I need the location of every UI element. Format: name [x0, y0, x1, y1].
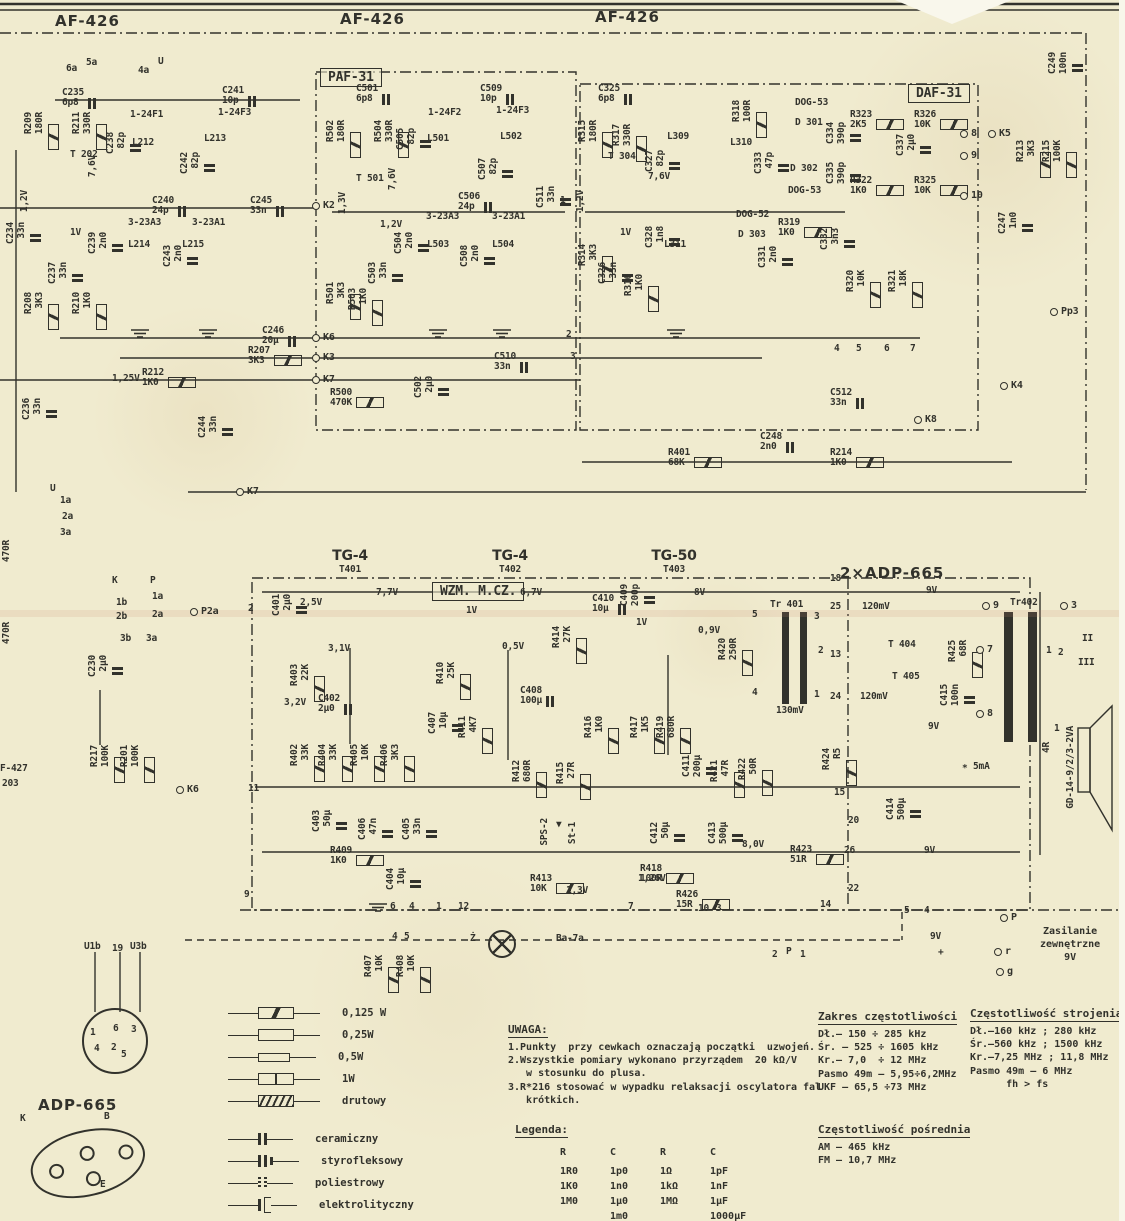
- text-label: ∗ 5mA: [962, 762, 990, 772]
- text-label: 4a: [138, 66, 149, 76]
- text-label: U: [158, 57, 164, 67]
- c509: C50910p: [480, 84, 514, 105]
- text-label: 6: [884, 344, 890, 354]
- pin-label: K7: [236, 486, 259, 497]
- text-label: Tr402: [1010, 598, 1038, 608]
- text-label: 120mV: [862, 602, 890, 612]
- text-label: 3: [131, 1025, 137, 1035]
- tuning-frequency-lines: Dł.–160 kHz ; 280 kHzŚr.–560 kHz ; 1500 …: [970, 1025, 1122, 1091]
- text-label: 1: [800, 950, 806, 960]
- package-hole: [47, 1162, 65, 1180]
- din-connector: [82, 1008, 148, 1074]
- r412: R412680R: [512, 760, 547, 798]
- adp-665-package: [24, 1117, 153, 1209]
- c247: C2471n0: [998, 212, 1033, 234]
- if-frequency-lines: AM – 465 kHzFM – 10,7 MHz: [818, 1141, 970, 1167]
- text-label: 1a: [152, 592, 163, 602]
- r422: R42250R: [738, 758, 773, 796]
- c241: C24110p: [222, 86, 256, 107]
- text-label: 2: [111, 1043, 117, 1053]
- text-label: 3: [814, 612, 820, 622]
- r314: R3143K3: [578, 244, 613, 282]
- r410: R41025K: [436, 662, 471, 700]
- text-label: 7,6V: [88, 155, 98, 177]
- text-label: Ba-7a: [556, 934, 584, 944]
- text-label: 14: [820, 900, 831, 910]
- c406: C40647n: [358, 818, 393, 840]
- text-label: 3-23A1: [192, 218, 225, 228]
- c506: C50624p: [458, 192, 492, 213]
- r415: R41527R: [556, 762, 591, 800]
- text-label: 4: [392, 932, 398, 942]
- text-label: 4: [94, 1044, 100, 1054]
- legenda-header: C: [710, 1147, 770, 1158]
- text-label: 15: [834, 788, 845, 798]
- text-label: D 301: [795, 118, 823, 128]
- text-label: P: [786, 947, 792, 957]
- section-header: AF-426: [55, 12, 120, 30]
- l213: L213: [202, 134, 226, 148]
- pin-label: 10: [960, 190, 983, 201]
- text-label: II: [1082, 634, 1093, 644]
- capacitor-symbol: [258, 1197, 271, 1213]
- text-label: Ż: [470, 934, 476, 944]
- legenda-cell: 1pF: [710, 1166, 770, 1177]
- if-frequency-title: Częstotliwość pośrednia: [818, 1123, 970, 1138]
- capacitor-symbol: [258, 1133, 267, 1145]
- r214: R2141K0: [830, 448, 884, 468]
- text-label: 2a: [62, 512, 73, 522]
- legend-row-resistor: 0,25W: [228, 1024, 386, 1046]
- text-label: U1b: [84, 942, 101, 952]
- text-label: 3,2V: [284, 698, 306, 708]
- capacitor-legend: ceramicznystyrofleksowypoliestrowyelektr…: [228, 1128, 414, 1216]
- c248: C2482n0: [760, 432, 794, 453]
- text-label: 470R: [2, 622, 12, 644]
- legenda-cell: 1M0: [560, 1196, 610, 1207]
- text-label: 1V: [636, 618, 647, 628]
- legenda-table: RCRC1R01p01Ω1pF1K01n01kΩ1nF1M01μ01MΩ1μF1…: [560, 1147, 770, 1221]
- c412: C41250μ: [650, 822, 685, 844]
- frequency-range-lines: Dł.– 150 ÷ 285 kHzŚr. – 525 ÷ 1605 kHzKr…: [818, 1028, 957, 1094]
- text-label: T 405: [892, 672, 920, 682]
- c413: C413500μ: [708, 822, 743, 844]
- text-label: 3: [716, 904, 722, 914]
- c403: C40350μ: [312, 810, 347, 832]
- c337: C3372μ0: [896, 134, 931, 156]
- section-header: AF-426: [595, 8, 660, 26]
- c240: C24024p: [152, 196, 186, 217]
- pin-label: K2: [312, 200, 335, 211]
- text-label: 10: [698, 904, 709, 914]
- text-label: 3a: [146, 634, 157, 644]
- text-label: 2: [818, 646, 824, 656]
- text-label: 3,1V: [328, 644, 350, 654]
- r424: R424R5: [822, 748, 857, 786]
- c239: C2392n0: [88, 232, 123, 254]
- text-label: 20: [848, 816, 859, 826]
- pin-label: 7: [976, 644, 993, 655]
- pin-label: Pp3: [1050, 306, 1078, 317]
- r500: R500470K: [330, 388, 384, 408]
- text-label: 5: [404, 932, 410, 942]
- pin-label: r: [994, 946, 1011, 957]
- pin-label: K5: [988, 128, 1011, 139]
- legenda-cell: 1nF: [710, 1181, 770, 1192]
- text-label: T 501: [356, 174, 384, 184]
- c331: C3312n0: [758, 246, 793, 268]
- text-label: 1: [1054, 724, 1060, 734]
- legenda-cell: 1K0: [560, 1181, 610, 1192]
- r418: R418100R: [640, 864, 694, 884]
- c243: C2432n0: [163, 245, 198, 267]
- text-label: E: [100, 1180, 106, 1190]
- text-label: St-1: [568, 822, 578, 844]
- text-label: 12: [458, 902, 469, 912]
- text-label: 24: [830, 692, 841, 702]
- text-label: 2: [248, 604, 254, 614]
- r318: R318100R: [732, 100, 767, 138]
- c503: C50333n: [368, 262, 403, 284]
- r316: R3161K0: [624, 274, 659, 312]
- text-label: 1: [1046, 646, 1052, 656]
- text-label: 5: [121, 1050, 127, 1060]
- text-label: 203: [2, 779, 19, 789]
- r503: R5031K0: [348, 288, 383, 326]
- text-label: 7,6V: [388, 168, 398, 190]
- text-label: 5: [856, 344, 862, 354]
- text-label: 7: [628, 902, 634, 912]
- notes-lines: 1.Punkty przy cewkach oznaczają początki…: [508, 1041, 821, 1107]
- r408: R40810K: [396, 955, 431, 993]
- text-label: 120mV: [860, 692, 888, 702]
- text-label: F-427: [0, 764, 28, 774]
- section-header: 2×ADP-665: [840, 564, 944, 582]
- legenda-cell: [560, 1211, 610, 1221]
- resistor-symbol: [258, 1007, 294, 1019]
- c327: C32782p: [645, 150, 680, 172]
- text-label: K: [20, 1114, 26, 1124]
- r407: R40710K: [364, 955, 399, 993]
- r416: R4161K0: [584, 716, 619, 754]
- l309: L309: [665, 132, 689, 146]
- resistor-legend: 0,125 W0,25W0,5W1Wdrutowy: [228, 1002, 386, 1112]
- r201: R201100K: [120, 745, 155, 783]
- c237: C23733n: [48, 262, 83, 284]
- package-hole: [117, 1143, 135, 1161]
- c507: C50782p: [478, 158, 513, 180]
- legend-row-capacitor: elektrolityczny: [228, 1194, 414, 1216]
- text-label: 6,7V: [520, 588, 542, 598]
- r401: R40168K: [668, 448, 722, 468]
- pin-label: K8: [914, 414, 937, 425]
- text-label: 470R: [2, 540, 12, 562]
- c405: C40533n: [402, 818, 437, 840]
- legend-row-resistor: 1W: [228, 1068, 386, 1090]
- text-label: K: [112, 576, 118, 586]
- text-label: 2: [1058, 648, 1064, 658]
- pin-label: 8: [960, 128, 977, 139]
- c404: C40410μ: [386, 868, 421, 890]
- pin-label: P: [1000, 912, 1017, 923]
- r423: R42351R: [790, 845, 844, 865]
- text-label: 7,6V: [648, 172, 670, 182]
- tuning-frequency-block: Częstotliwość strojenia Dł.–160 kHz ; 28…: [970, 1002, 1122, 1091]
- text-label: 0,5V: [502, 642, 524, 652]
- text-label: 1a: [60, 496, 71, 506]
- text-label: 4: [924, 906, 930, 916]
- text-label: 5: [752, 610, 758, 620]
- text-label: 3a: [60, 528, 71, 538]
- text-label: 1: [90, 1028, 96, 1038]
- text-label: 1b: [116, 598, 127, 608]
- pin-label: K6: [176, 784, 199, 795]
- text-label: 9V: [924, 846, 935, 856]
- text-label: T 404: [888, 640, 916, 650]
- c242: C24282p: [180, 152, 215, 174]
- legenda-cell: 1n0: [610, 1181, 660, 1192]
- text-label: 13: [830, 650, 841, 660]
- t402: TG-4T402: [478, 548, 542, 578]
- text-label: 3-23A3: [426, 212, 459, 222]
- legenda-header: C: [610, 1147, 660, 1158]
- text-label: 2,5V: [300, 598, 322, 608]
- text-label: 2: [566, 330, 572, 340]
- text-label: DOG-52: [736, 210, 769, 220]
- r502: R502180R: [326, 120, 361, 158]
- text-label: 9: [244, 890, 250, 900]
- text-label: D 303: [738, 230, 766, 240]
- text-label: 5: [904, 906, 910, 916]
- text-label: 1,2V: [380, 220, 402, 230]
- tuning-frequency-title: Częstotliwość strojenia: [970, 1007, 1122, 1022]
- text-label: DOG-53: [795, 98, 828, 108]
- legend-row-capacitor: styrofleksowy: [228, 1150, 414, 1172]
- text-label: B: [104, 1112, 110, 1122]
- c409: C409200p: [620, 584, 655, 606]
- text-label: 5a: [86, 58, 97, 68]
- l310: L310: [728, 138, 752, 152]
- text-label: 9V: [930, 932, 941, 942]
- pin-label: 9: [960, 150, 977, 161]
- resistor-symbol: [258, 1029, 294, 1041]
- text-label: 1V: [70, 228, 81, 238]
- legenda-header: R: [560, 1147, 610, 1158]
- c246: C24620μ: [262, 326, 296, 347]
- r419: R419680R: [656, 716, 691, 754]
- pin-label: 8: [976, 708, 993, 719]
- r420: R420250R: [718, 638, 753, 676]
- text-label: 1-24F1: [130, 110, 163, 120]
- c332: C3323n3: [820, 228, 855, 250]
- c234: C23433n: [6, 222, 41, 244]
- text-label: SPS-2: [540, 818, 550, 846]
- r323: R3232K5: [850, 110, 904, 130]
- text-label: P: [150, 576, 156, 586]
- r212: R2121K0: [142, 368, 196, 388]
- text-label: 2b: [116, 612, 127, 622]
- text-label: 1: [436, 902, 442, 912]
- c512: C51233n: [830, 388, 864, 409]
- text-label: D 302: [790, 164, 818, 174]
- r209: R209180R: [24, 112, 59, 150]
- legend-row-resistor: drutowy: [228, 1090, 386, 1112]
- legenda-cell: 1000μF: [710, 1211, 770, 1221]
- l501: L501: [425, 134, 449, 148]
- legend-row-capacitor: ceramiczny: [228, 1128, 414, 1150]
- text-label: 8V: [694, 588, 705, 598]
- text-label: 8,0V: [742, 840, 764, 850]
- legenda-block: Legenda: RCRC1R01p01Ω1pF1K01n01kΩ1nF1M01…: [515, 1118, 770, 1221]
- c415: C415100n: [940, 684, 975, 706]
- text-label: 1,3V: [338, 192, 348, 214]
- text-label: DOG-53: [788, 186, 821, 196]
- text-label: 1,25V: [112, 374, 140, 384]
- capacitor-symbol: [258, 1155, 273, 1167]
- text-label: 3-23A1: [492, 212, 525, 222]
- resistor-symbol: [258, 1073, 294, 1085]
- c501: C5016p8: [356, 84, 390, 105]
- legenda-cell: 1Ω: [660, 1166, 710, 1177]
- legend-row-resistor: 0,125 W: [228, 1002, 386, 1024]
- text-label: 130mV: [776, 706, 804, 716]
- r210: R2101K0: [72, 292, 107, 330]
- legenda-cell: 1μ0: [610, 1196, 660, 1207]
- legenda-cell: 1μF: [710, 1196, 770, 1207]
- t403: TG-50T403: [642, 548, 706, 578]
- legenda-cell: 1MΩ: [660, 1196, 710, 1207]
- c245: C24533n: [250, 196, 284, 217]
- r411: R4114K7: [458, 716, 493, 754]
- legenda-cell: 1R0: [560, 1166, 610, 1177]
- legenda-title: Legenda:: [515, 1123, 568, 1138]
- pin-label: K3: [312, 352, 335, 363]
- text-label: 1,2V: [576, 190, 586, 212]
- text-label: 4: [752, 688, 758, 698]
- text-label: 3b: [120, 634, 131, 644]
- paper-edge: [1119, 0, 1125, 1221]
- legend-row-resistor: 0,5W: [228, 1046, 386, 1068]
- legend-row-capacitor: poliestrowy: [228, 1172, 414, 1194]
- text-label: 1-24F3: [218, 108, 251, 118]
- c508: C5082n0: [460, 245, 495, 267]
- text-label: +: [938, 948, 944, 958]
- c249: C249100n: [1048, 52, 1083, 74]
- t401: TG-4T401: [318, 548, 382, 578]
- text-label: 7,7V: [376, 588, 398, 598]
- c402: C4022μ0: [318, 694, 352, 715]
- c236: C23633n: [22, 398, 57, 420]
- r322: R3221K0: [850, 176, 904, 196]
- resistor-symbol: [258, 1095, 294, 1107]
- text-label: 3-23A3: [128, 218, 161, 228]
- r211: R211330R: [72, 112, 107, 150]
- text-label: 22: [848, 884, 859, 894]
- c333: C33347p: [754, 152, 789, 174]
- text-label: 1: [560, 196, 566, 206]
- r207: R2073K3: [248, 346, 302, 366]
- pin-label: P2a: [190, 606, 218, 617]
- l502: L502: [498, 132, 522, 146]
- c504: C5042n0: [394, 232, 429, 254]
- c230: C2302μ0: [88, 655, 123, 677]
- block-label: DAF-31: [908, 84, 970, 103]
- text-label: 1-24F2: [428, 108, 461, 118]
- text-label: T 304: [608, 152, 636, 162]
- notes-block: UWAGA: 1.Punkty przy cewkach oznaczają p…: [508, 1018, 821, 1107]
- r406: R4063K3: [380, 744, 415, 782]
- r215: R215100K: [1042, 140, 1077, 178]
- if-frequency-block: Częstotliwość pośrednia AM – 465 kHzFM –…: [818, 1118, 970, 1167]
- text-label: 9V: [928, 722, 939, 732]
- text-label: III: [1078, 658, 1095, 668]
- r320: R32010K: [846, 270, 881, 308]
- text-label: ▼: [556, 820, 562, 830]
- legenda-cell: [660, 1211, 710, 1221]
- legenda-cell: 1kΩ: [660, 1181, 710, 1192]
- l311: L311: [662, 240, 686, 254]
- text-label: 18: [830, 574, 841, 584]
- c502: C5022μ0: [414, 376, 449, 398]
- r414: R41427K: [552, 626, 587, 664]
- r409: R4091K0: [330, 846, 384, 866]
- block-label: WZM. M.CZ.: [432, 582, 524, 601]
- text-label: 1V: [620, 228, 631, 238]
- text-label: 1: [814, 690, 820, 700]
- r404: R40433K: [318, 744, 353, 782]
- c408: C408100μ: [520, 686, 554, 707]
- package-hole: [78, 1144, 96, 1162]
- text-label: 19: [112, 944, 123, 954]
- text-label: 4: [409, 902, 415, 912]
- legenda-cell: 1p0: [610, 1166, 660, 1177]
- frequency-range-title: Zakres częstotliwości: [818, 1010, 957, 1025]
- text-label: 1-24F3: [496, 106, 529, 116]
- lamp-icon: [488, 930, 516, 958]
- pin-label: g: [996, 966, 1013, 977]
- text-label: 3: [570, 352, 576, 362]
- notes-title: UWAGA:: [508, 1023, 548, 1038]
- pin-label: 3: [1060, 600, 1077, 611]
- text-label: 1,2V: [20, 190, 30, 212]
- capacitor-symbol: [258, 1177, 267, 1189]
- text-label: 2: [772, 950, 778, 960]
- pin-label: K7: [312, 374, 335, 385]
- pin-label: 9: [982, 600, 999, 611]
- c325: C3256p8: [598, 84, 632, 105]
- l212: L212: [130, 138, 154, 152]
- legenda-cell: 1m0: [610, 1211, 660, 1221]
- text-label: 4: [834, 344, 840, 354]
- text-label: 6: [113, 1024, 119, 1034]
- text-label: U3b: [130, 942, 147, 952]
- text-label: 0,9V: [698, 626, 720, 636]
- c414: C414500μ: [886, 798, 921, 820]
- schematic-canvas: AF-426AF-426AF-4266a5a4aUC2356p8C24110pR…: [0, 0, 1125, 1221]
- text-label: 1,3V: [566, 886, 588, 896]
- text-label: Tr 401: [770, 600, 803, 610]
- text-label: 1V: [466, 606, 477, 616]
- text-label: 26: [844, 846, 855, 856]
- text-label: GD-14-9/2/3-2VA: [1066, 726, 1076, 809]
- c510: C51033n: [494, 352, 528, 373]
- text-label: 2a: [152, 610, 163, 620]
- text-label: 6: [390, 902, 396, 912]
- text-label: 6a: [66, 64, 77, 74]
- external-power-label: Zasilaniezewnętrzne9V: [1040, 925, 1100, 965]
- c244: C24433n: [198, 416, 233, 438]
- l214: L214: [126, 240, 150, 254]
